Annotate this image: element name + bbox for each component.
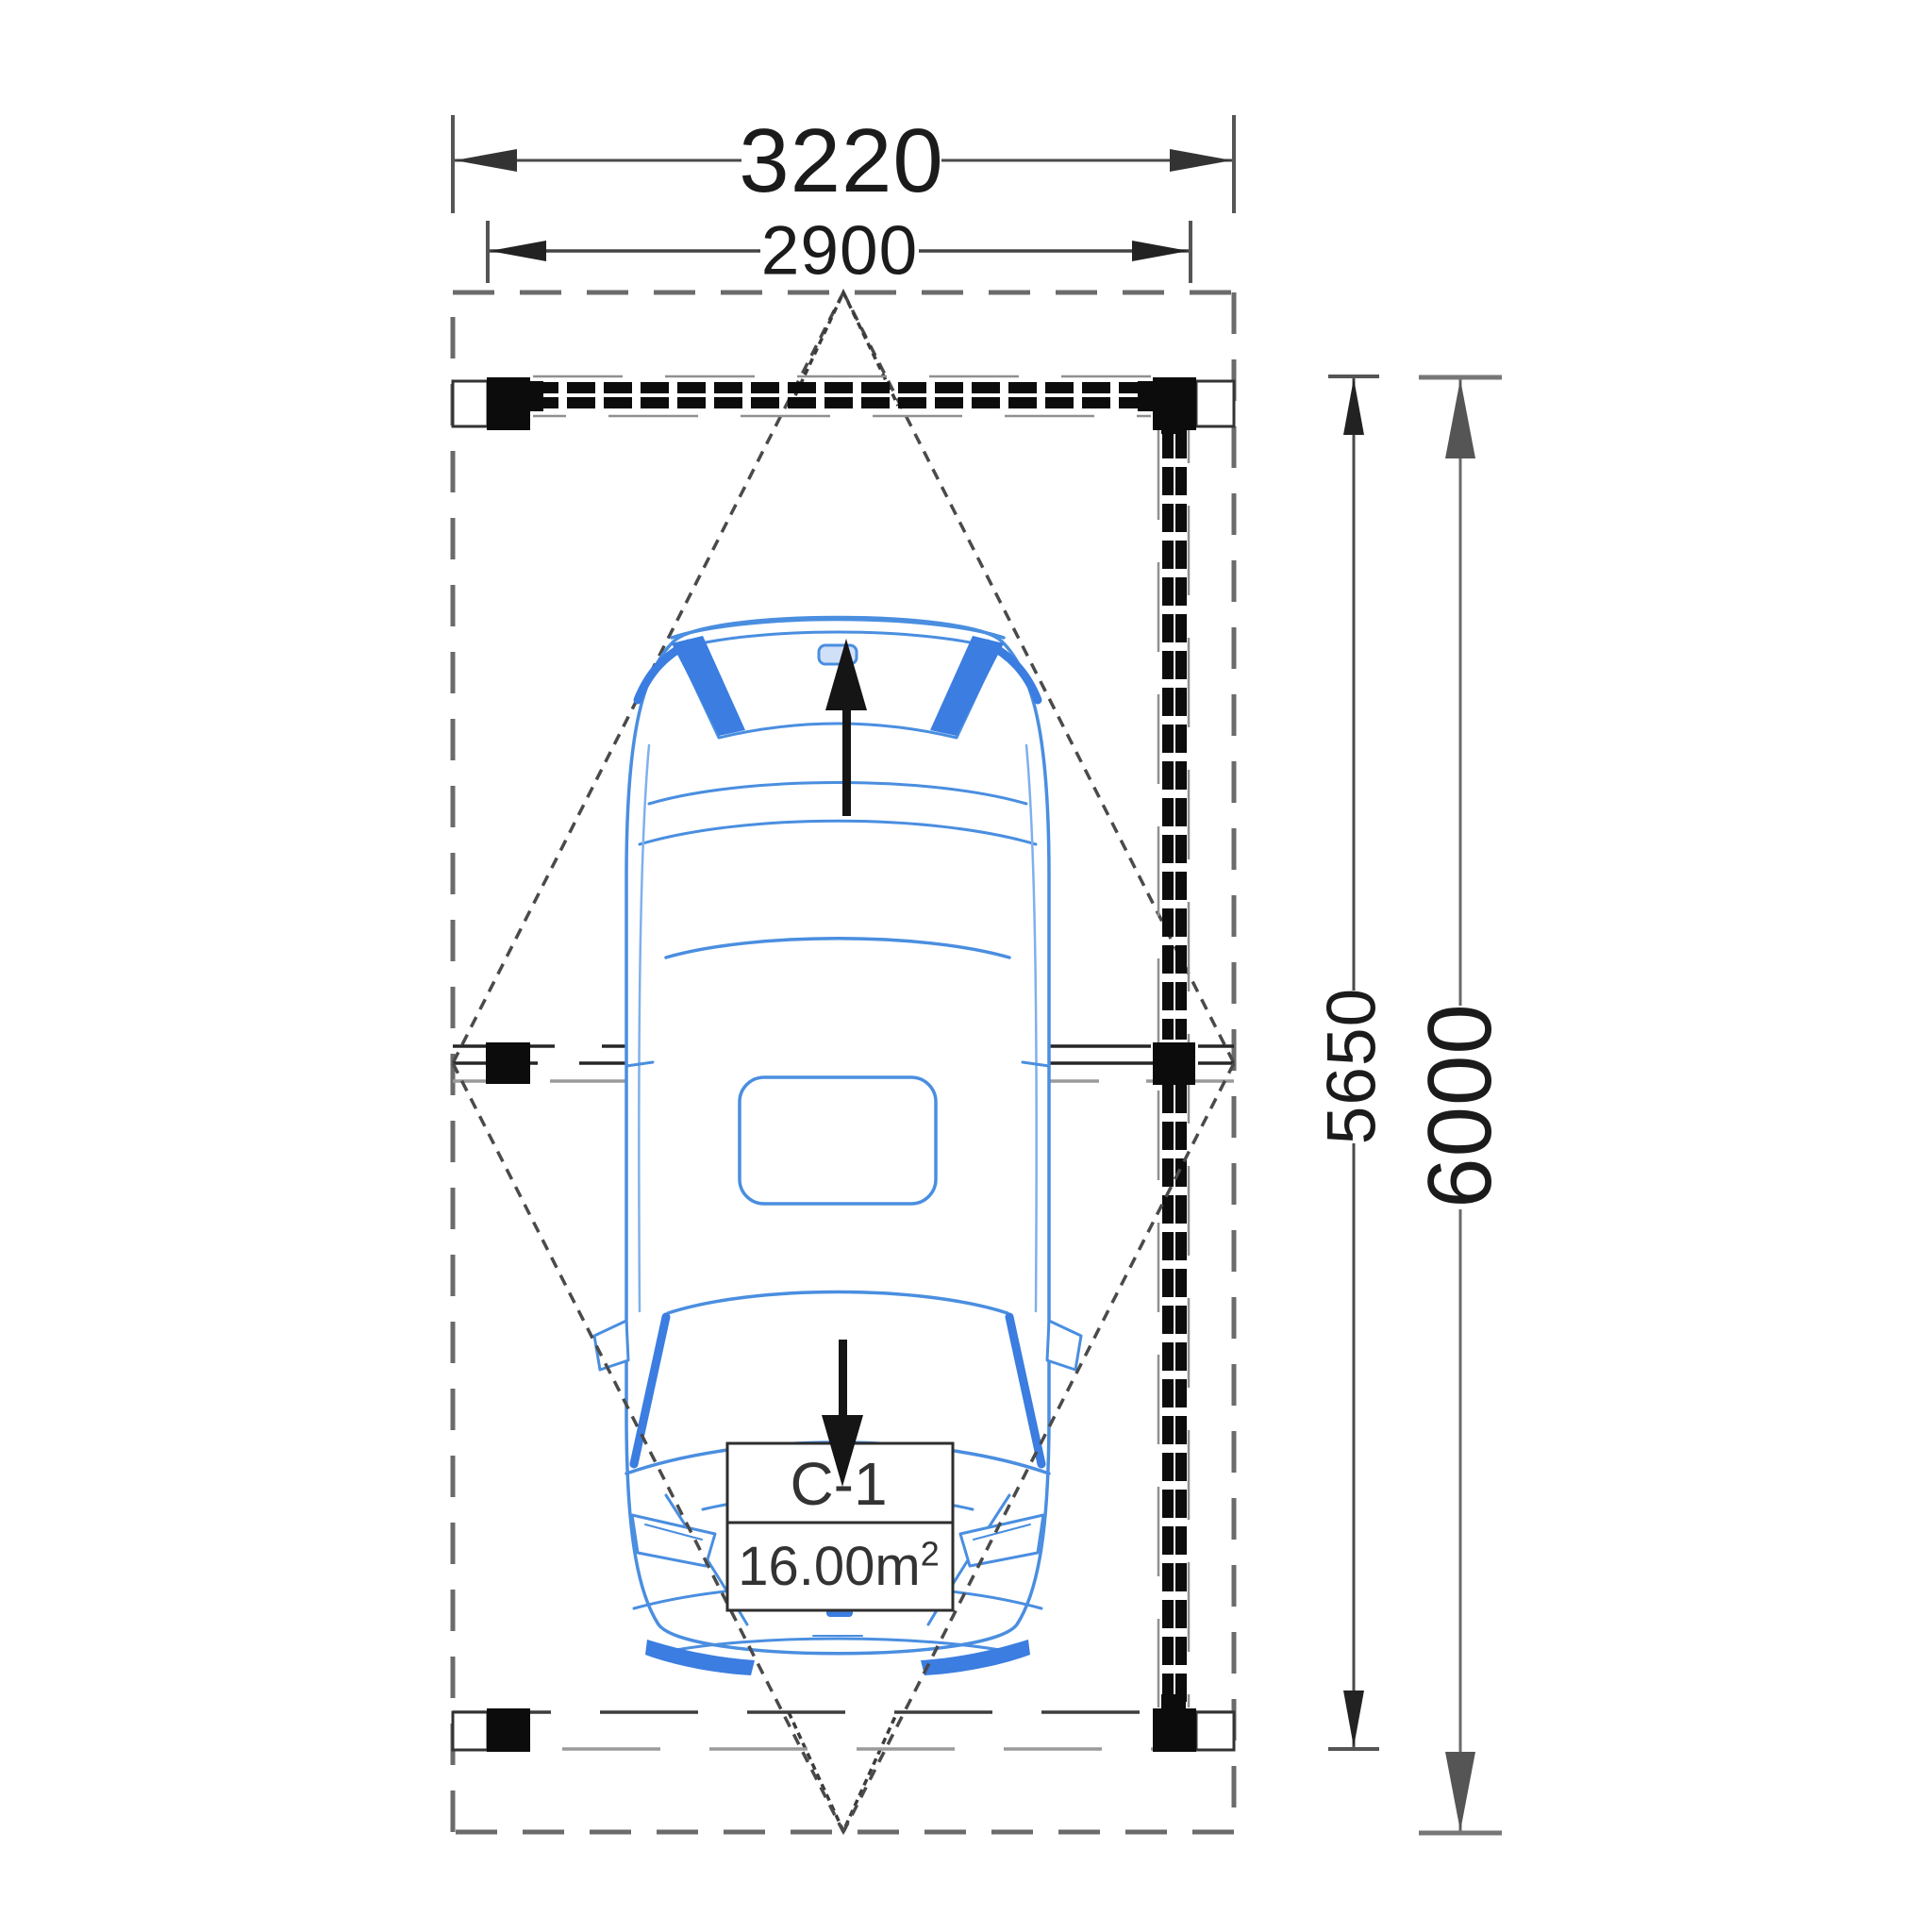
dim-arrow-down-icon xyxy=(1445,1752,1475,1831)
gable-triangle-bottom xyxy=(789,1712,897,1831)
pad-top-right xyxy=(1196,381,1234,426)
carport-floor-plan: 3220 2900 5650 6000 C-1 16.00m2 xyxy=(0,0,1932,1932)
dimension-roof-width-label: 3220 xyxy=(739,116,944,207)
dimension-post-span-label: 2900 xyxy=(761,217,918,286)
pad-top-left xyxy=(453,381,488,426)
space-area-exponent: 2 xyxy=(921,1535,940,1574)
post-top-left xyxy=(487,377,530,430)
dim-arrow-up-icon xyxy=(1343,378,1364,435)
post-bottom-right xyxy=(1153,1708,1196,1752)
pad-bottom-left xyxy=(453,1712,488,1750)
dim-arrow-left-icon xyxy=(455,149,517,172)
dim-arrow-up-icon xyxy=(1445,379,1475,458)
dimension-wall-length-label: 5650 xyxy=(1318,988,1387,1144)
car-mirror-left xyxy=(594,1321,628,1370)
dim-arrow-left-icon xyxy=(490,241,546,261)
dimension-total-depth-label: 6000 xyxy=(1415,1003,1506,1208)
post-bottom-left xyxy=(487,1708,530,1752)
post-middle-left xyxy=(486,1042,530,1084)
plan-linework xyxy=(0,0,1932,1932)
space-area-label: 16.00m2 xyxy=(738,1540,939,1594)
top-wall-beam xyxy=(528,376,1153,416)
post-middle-right xyxy=(1153,1042,1195,1085)
space-name-label: C-1 xyxy=(790,1454,887,1514)
dim-arrow-right-icon xyxy=(1170,149,1232,172)
dim-arrow-right-icon xyxy=(1132,241,1189,261)
pad-bottom-right xyxy=(1196,1712,1234,1750)
dim-arrow-down-icon xyxy=(1343,1690,1364,1747)
space-area-value: 16.00m xyxy=(738,1536,920,1597)
post-top-right xyxy=(1153,377,1196,430)
car-mirror-right xyxy=(1047,1321,1081,1370)
eave-lines-bottom xyxy=(453,1712,1234,1749)
